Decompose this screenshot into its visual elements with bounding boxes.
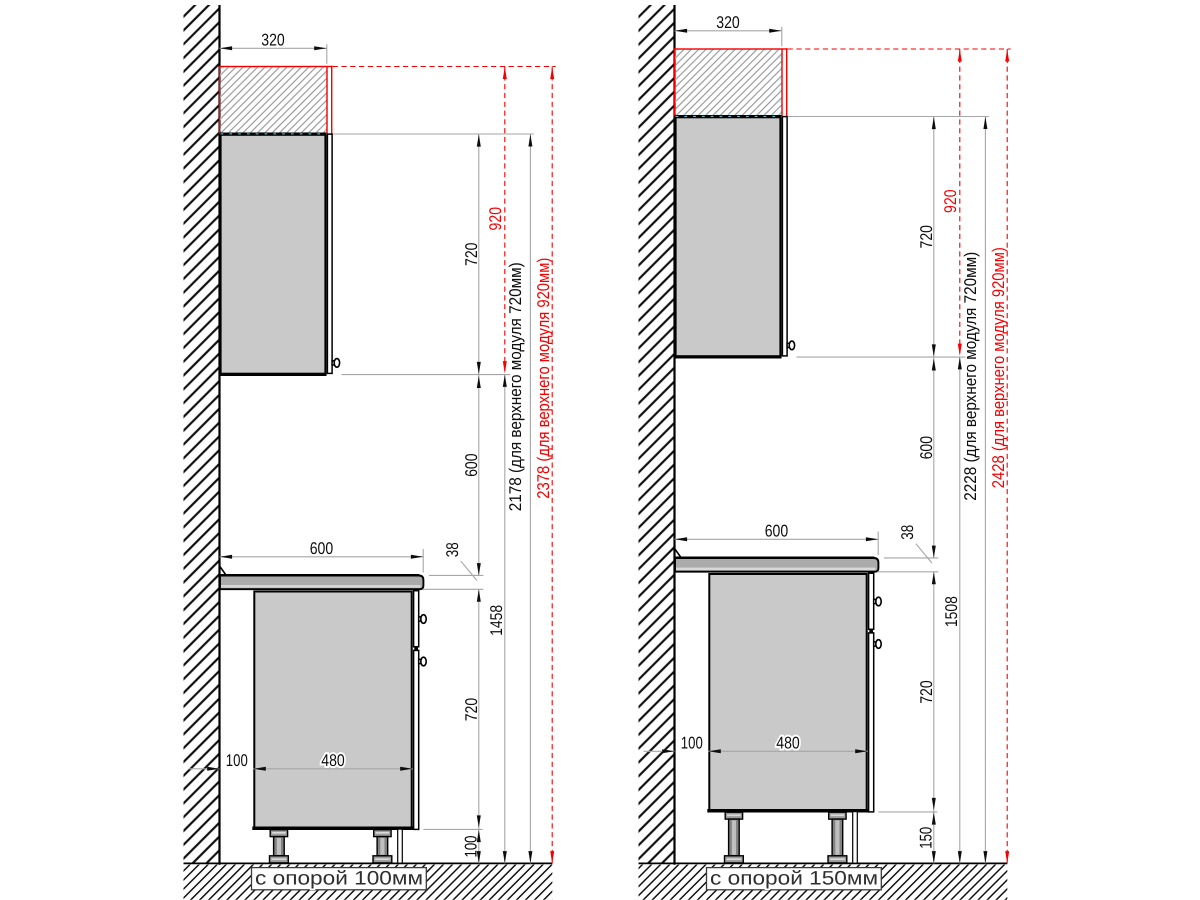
svg-text:600: 600	[765, 522, 789, 541]
svg-text:600: 600	[917, 436, 936, 460]
svg-text:720: 720	[917, 680, 936, 704]
svg-text:920: 920	[941, 189, 960, 213]
svg-text:720: 720	[462, 698, 481, 722]
svg-text:480: 480	[776, 734, 800, 753]
svg-text:1508: 1508	[942, 596, 961, 627]
svg-text:720: 720	[917, 225, 936, 249]
svg-text:1458: 1458	[487, 605, 506, 636]
svg-text:100: 100	[681, 734, 703, 753]
svg-text:920: 920	[486, 207, 505, 231]
svg-text:38: 38	[443, 542, 462, 557]
svg-text:600: 600	[462, 453, 481, 477]
svg-text:2428 (для верхнего модуля 920м: 2428 (для верхнего модуля 920мм)	[989, 247, 1008, 488]
svg-text:150: 150	[917, 827, 936, 849]
svg-text:2378 (для верхнего модуля 920м: 2378 (для верхнего модуля 920мм)	[534, 258, 553, 499]
svg-text:2228 (для верхнего модуля 720м: 2228 (для верхнего модуля 720мм)	[961, 252, 980, 501]
svg-text:с опорой 100мм: с опорой 100мм	[255, 868, 423, 890]
svg-text:480: 480	[321, 751, 345, 770]
svg-text:320: 320	[261, 31, 285, 50]
svg-text:2178 (для верхнего модуля 720м: 2178 (для верхнего модуля 720мм)	[506, 262, 525, 511]
svg-text:100: 100	[226, 751, 248, 770]
svg-text:38: 38	[898, 525, 917, 540]
svg-text:100: 100	[462, 836, 481, 858]
svg-text:600: 600	[310, 539, 334, 558]
svg-text:с опорой 150мм: с опорой 150мм	[710, 868, 878, 890]
svg-text:320: 320	[716, 13, 740, 32]
svg-text:720: 720	[462, 243, 481, 267]
